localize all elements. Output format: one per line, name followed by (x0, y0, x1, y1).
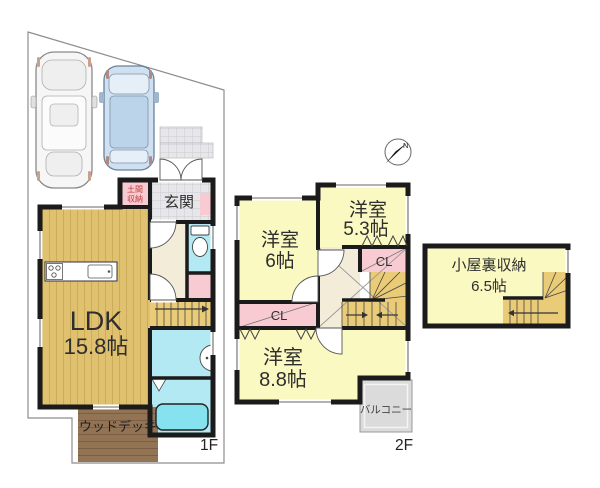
closet-1f (187, 273, 213, 298)
ldk-size-label: 15.8帖 (64, 334, 129, 359)
entry-porch (160, 143, 213, 158)
car-sedan (31, 52, 97, 188)
wood-deck-label: ウッドデッキ (79, 419, 157, 434)
toilet-icon (191, 226, 209, 257)
wood-deck (78, 407, 158, 462)
floorplan-canvas: 土間 収納 玄関 LDK 15.8帖 ウッドデッキ 1F (0, 0, 600, 488)
room-8-8-size: 8.8帖 (259, 368, 307, 391)
closet-left-label: CL (271, 308, 288, 323)
balcony-label: バルコニー (360, 404, 412, 416)
attic-size-label: 6.5帖 (471, 278, 507, 295)
room-5-3-size: 5.3帖 (343, 218, 388, 240)
room-6-size: 6帖 (265, 250, 295, 272)
doma-label-line1: 土間 (127, 184, 143, 194)
floor1-label: 1F (200, 437, 218, 454)
bathtub-icon (156, 404, 208, 430)
genkan-label: 玄関 (164, 194, 194, 211)
attic-storage: 小屋裏収納 6.5帖 (425, 246, 571, 326)
room-6-label: 洋室 (261, 229, 299, 251)
car-suv (99, 66, 159, 170)
doma-label-line2: 収納 (127, 194, 143, 204)
room-5-3-label: 洋室 (349, 199, 387, 221)
compass-icon: N (385, 139, 411, 165)
floor2-label: 2F (395, 437, 413, 454)
windows-attic (566, 250, 571, 273)
entry-porch-step (160, 127, 202, 143)
room-8-8-label: 洋室 (263, 346, 303, 369)
compass-north-label: N (403, 141, 408, 150)
ldk-label: LDK (70, 306, 123, 336)
kitchen-counter (45, 262, 117, 281)
closet-right-label: CL (376, 254, 393, 269)
attic-label: 小屋裏収納 (451, 256, 526, 274)
floor-2f: 洋室 5.3帖 洋室 6帖 CL CL 洋室 8.8帖 バルコニー 2F (235, 183, 414, 455)
floorplan-svg: 土間 収納 玄関 LDK 15.8帖 ウッドデッキ 1F (0, 0, 600, 488)
stairs-1f (150, 300, 213, 328)
